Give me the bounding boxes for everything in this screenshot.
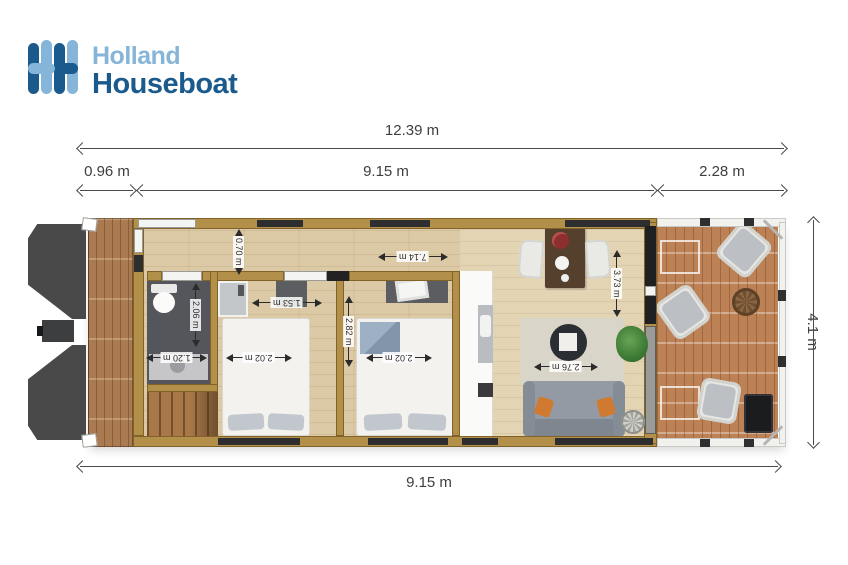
dim-bedroom1-width-label: 1.53 m [271, 297, 303, 308]
rear-door-opening [645, 286, 656, 296]
dim-label-bow: 0.96 m [84, 163, 130, 180]
logo-crossbar-light [28, 63, 55, 74]
window-top-2 [370, 220, 430, 227]
bow-wing-bottom [28, 345, 86, 440]
toilet-bowl [153, 292, 175, 313]
dining-chair-right [585, 239, 612, 279]
terrace-chair-3 [696, 377, 743, 425]
coffee-table-tray [559, 333, 577, 351]
window-front [134, 255, 143, 272]
brand-logo: Holland Houseboat [28, 38, 288, 102]
bedroom2-pillow-left [364, 413, 403, 431]
staircase [147, 392, 218, 436]
dim-label-cabin-bottom: 9.15 m [406, 474, 452, 491]
dim-arrow-bow [78, 185, 135, 195]
sofa-backrest [523, 419, 625, 437]
window-bottom-3 [462, 438, 498, 445]
railing-post [744, 439, 754, 447]
dim-bed2-width: 2.02 m [366, 352, 432, 363]
pouf [621, 410, 645, 434]
dim-living-length: 3.73 m [611, 250, 622, 317]
sofa-armrest-left [523, 381, 535, 437]
dim-hallway-width: 0.70 m [233, 229, 244, 270]
logo-crossbar-dark [55, 63, 78, 74]
window-top-1 [257, 220, 303, 227]
dim-arrow-beam [808, 218, 818, 447]
railing-post [778, 290, 786, 301]
bedroom2-blanket [360, 322, 400, 354]
dim-living-width: 2.76 m [534, 361, 598, 372]
dim-bed1-width: 2.02 m [226, 352, 292, 363]
rear-glass-door-lower [645, 296, 656, 324]
dim-bathroom-width: 1.20 m [146, 352, 207, 363]
dim-label-cabin-top: 9.15 m [363, 163, 409, 180]
bathroom-door [162, 271, 202, 281]
bow-deck [88, 218, 133, 447]
dim-label-total-length: 12.39 m [385, 122, 439, 139]
dim-open-plan-length-label: 7.14 m [397, 251, 429, 262]
dim-bathroom-length-label: 2.06 m [190, 299, 201, 331]
dim-bedroom1-width: 1.53 m [252, 297, 322, 308]
arrowhead-right [775, 142, 788, 155]
dim-open-plan-length: 7.14 m [378, 251, 448, 262]
bow-cleat-top [81, 217, 97, 232]
railing-post [744, 218, 754, 226]
dim-bedroom2-length-label: 2.82 m [343, 316, 354, 348]
shower-fixture [238, 285, 244, 296]
dim-bathroom-width-label: 1.20 m [161, 352, 193, 363]
arrowhead-left [76, 142, 89, 155]
entrance-door [138, 219, 196, 228]
plant [616, 326, 648, 362]
bedroom1-pillow-right [268, 413, 305, 431]
rear-glass-door-upper [645, 226, 656, 286]
window-bottom-1 [218, 438, 300, 445]
hallway-wall-a [147, 271, 162, 281]
window-top-3 [565, 220, 650, 227]
kitchen-wall [452, 271, 460, 436]
bedroom1-pillow-left [228, 413, 265, 431]
window-bottom-4 [555, 438, 653, 445]
terrace-wicker-table [732, 288, 760, 316]
bedroom2-pillow-right [408, 413, 447, 431]
railing-right [779, 222, 786, 444]
bow-cleat-bottom [81, 433, 97, 448]
brand-name-line1: Holland [92, 44, 180, 69]
railing-post [778, 356, 786, 367]
dim-arrow-cabin-top [138, 185, 656, 195]
cup [561, 274, 569, 282]
dining-chair-left [518, 239, 545, 279]
dim-living-length-label: 3.73 m [611, 268, 622, 300]
bathroom-bottom-wall [147, 384, 218, 392]
railing-post [700, 439, 710, 447]
kitchen-sink [480, 315, 491, 337]
bedroom2-door [327, 271, 349, 281]
dim-label-terrace: 2.28 m [699, 163, 745, 180]
deck-hatch-top [660, 240, 700, 274]
dim-bed1-width-label: 2.02 m [243, 352, 275, 363]
bow-step [42, 320, 74, 342]
dim-hallway-width-label: 0.70 m [233, 236, 244, 268]
hallway-wall-c [349, 271, 460, 281]
floorplan-page: Holland Houseboat 12.39 m 0.96 m 9.15 m … [0, 0, 848, 565]
dim-arrow-cabin-bottom [78, 461, 780, 471]
window-bottom-2 [368, 438, 448, 445]
dim-arrow-total-length [78, 143, 786, 153]
terrace-grill-box [744, 394, 773, 433]
bedroom1-door [284, 271, 327, 281]
brand-name-line2: Houseboat [92, 70, 237, 99]
dim-living-width-label: 2.76 m [550, 361, 582, 372]
dim-bed2-width-label: 2.02 m [383, 352, 415, 363]
dim-bedroom2-length: 2.82 m [343, 296, 354, 367]
railing-post [700, 218, 710, 226]
dinner-plate [555, 256, 569, 270]
kitchen-hob [478, 383, 493, 397]
bow-wing-top [28, 224, 86, 319]
bow-cleat-nub [37, 326, 43, 336]
front-door-glass [134, 229, 143, 253]
dim-arrow-terrace [659, 185, 786, 195]
bathroom-side-wall [210, 271, 218, 392]
dim-bathroom-length: 2.06 m [190, 283, 201, 347]
fruit-bowl [552, 232, 569, 249]
deck-hatch-bottom [660, 386, 700, 420]
